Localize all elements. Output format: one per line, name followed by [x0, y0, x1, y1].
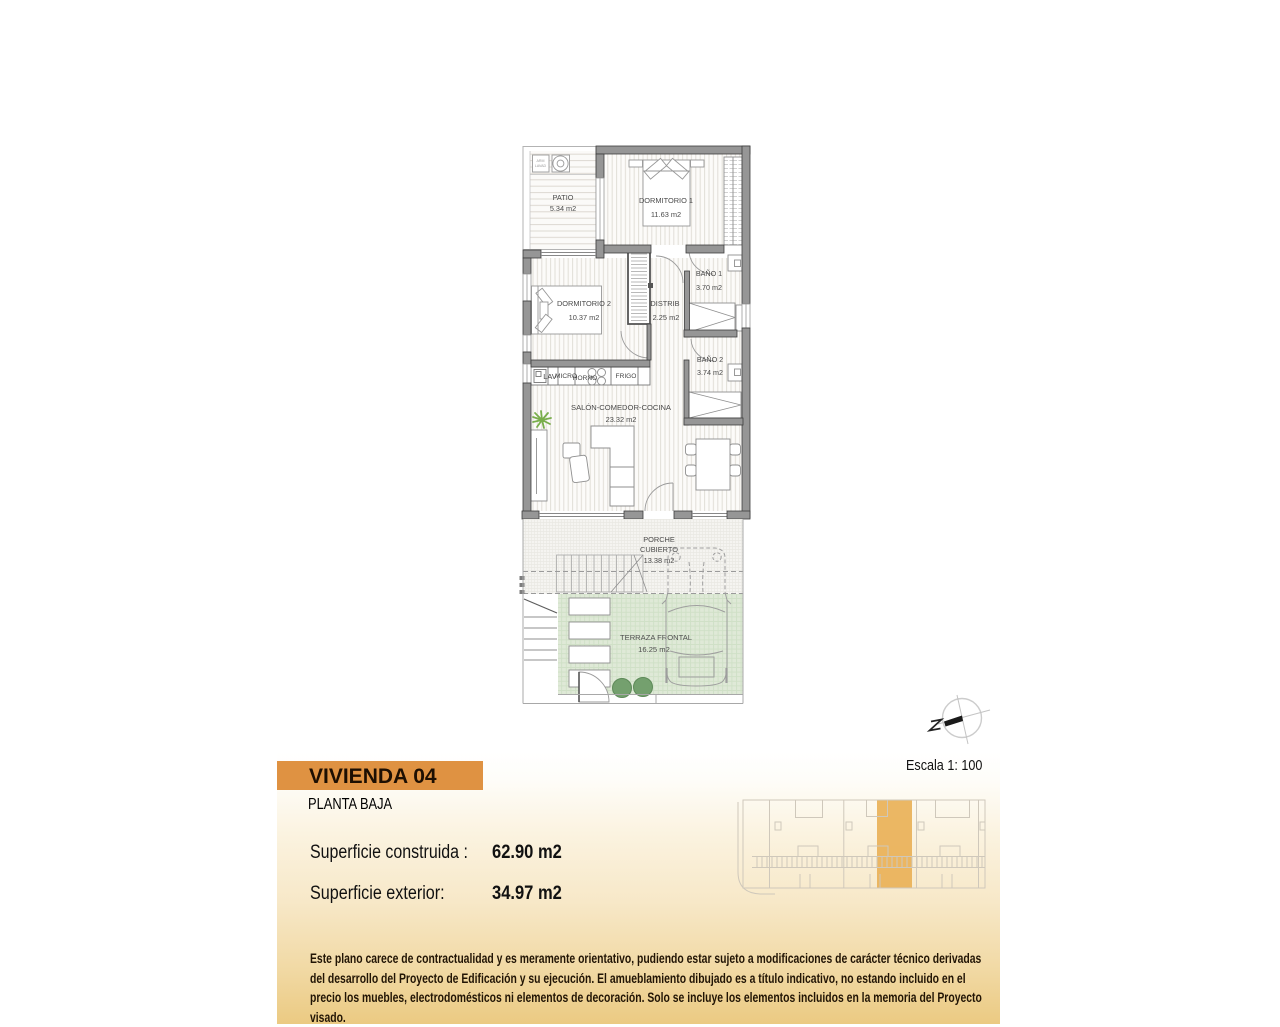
svg-text:3.74 m2: 3.74 m2 — [697, 368, 723, 377]
svg-text:DORMITORIO 1: DORMITORIO 1 — [639, 196, 693, 205]
svg-text:13.38 m2: 13.38 m2 — [644, 556, 675, 565]
svg-text:11.63 m2: 11.63 m2 — [651, 210, 681, 219]
svg-text:PORCHE: PORCHE — [643, 535, 675, 544]
svg-text:ARM: ARM — [537, 159, 545, 163]
svg-text:23.32 m2: 23.32 m2 — [606, 415, 637, 424]
svg-text:BAÑO 2: BAÑO 2 — [697, 355, 723, 364]
svg-text:CUBIERTO: CUBIERTO — [640, 545, 678, 554]
svg-text:PATIO: PATIO — [553, 193, 574, 202]
svg-text:DORMITORIO 2: DORMITORIO 2 — [557, 299, 611, 308]
svg-text:16.25 m2: 16.25 m2 — [638, 645, 670, 654]
svg-text:LAVAD: LAVAD — [535, 164, 547, 168]
svg-text:DISTRIB: DISTRIB — [650, 299, 679, 308]
svg-text:BAÑO 1: BAÑO 1 — [696, 269, 722, 278]
svg-text:TERRAZA FRONTAL: TERRAZA FRONTAL — [620, 633, 692, 642]
svg-text:10.37 m2: 10.37 m2 — [569, 313, 600, 322]
svg-text:5.34 m2: 5.34 m2 — [550, 204, 576, 213]
svg-text:3.70 m2: 3.70 m2 — [696, 283, 722, 292]
svg-text:2.25 m2: 2.25 m2 — [653, 313, 680, 322]
svg-text:HORNO: HORNO — [573, 375, 598, 382]
svg-text:FRIGO: FRIGO — [616, 373, 637, 380]
svg-text:SALÓN-COMEDOR-COCINA: SALÓN-COMEDOR-COCINA — [571, 403, 672, 412]
